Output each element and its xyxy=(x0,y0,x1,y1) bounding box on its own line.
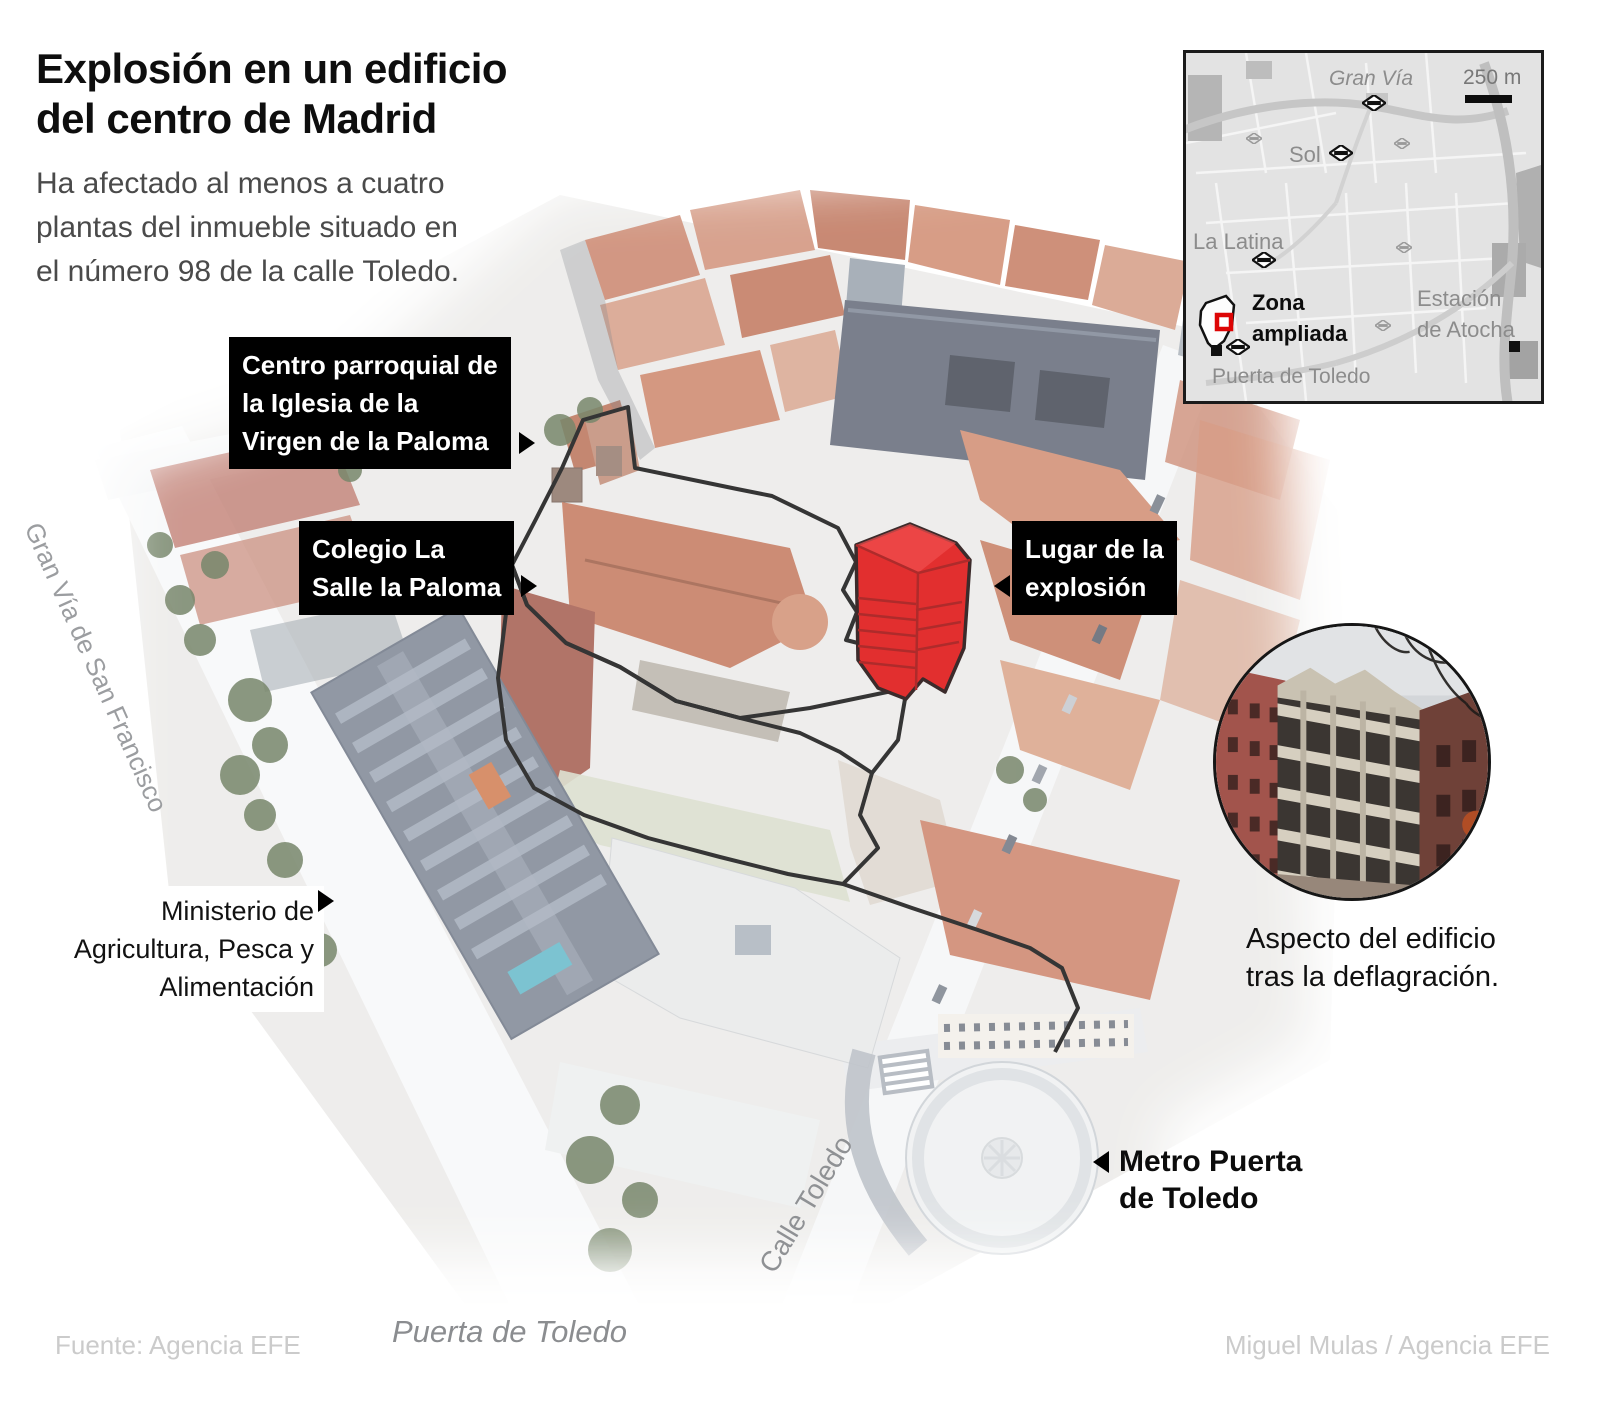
metro-icon xyxy=(1394,138,1410,149)
callout-centro-parroquial-line2: la Iglesia de la xyxy=(242,384,498,422)
street-label-puerta-de-toledo: Puerta de Toledo xyxy=(392,1314,627,1350)
page-title: Explosión en un edificio del centro de M… xyxy=(36,44,507,144)
callout-centro-parroquial: Centro parroquial de la Iglesia de la Vi… xyxy=(229,337,511,469)
metro-icon xyxy=(1396,242,1412,253)
source-credit: Fuente: Agencia EFE xyxy=(55,1330,301,1361)
zona-line1: Zona xyxy=(1252,287,1347,318)
page-title-line1: Explosión en un edificio xyxy=(36,44,507,94)
scale-bar xyxy=(1465,95,1512,103)
metro-icon xyxy=(1226,339,1250,355)
estacion-line1: Estación xyxy=(1417,283,1515,314)
author-credit: Miguel Mulas / Agencia EFE xyxy=(1225,1330,1550,1361)
inset-label-gran-via: Gran Vía xyxy=(1329,67,1413,91)
callout-lugar-explosion-line2: explosión xyxy=(1025,568,1164,606)
callout-colegio: Colegio La Salle la Paloma xyxy=(299,521,514,615)
subtitle-line2: plantas del inmueble situado en xyxy=(36,206,459,250)
damage-photo xyxy=(1213,623,1491,901)
metro-icon xyxy=(1375,320,1391,331)
inset-label-la-latina: La Latina xyxy=(1193,229,1284,255)
pointer-left-icon xyxy=(1093,1151,1109,1173)
callout-ministerio: Ministerio de Agricultura, Pesca y Alime… xyxy=(52,886,324,1012)
zona-line2: ampliada xyxy=(1252,318,1347,349)
callout-colegio-line2: Salle la Paloma xyxy=(312,568,501,606)
damage-photo-graphics xyxy=(1216,626,1488,898)
photo-caption-line2: tras la deflagración. xyxy=(1246,958,1499,996)
landmark-square-icon xyxy=(1211,345,1222,356)
inset-label-sol: Sol xyxy=(1289,142,1321,168)
photo-caption: Aspecto del edificio tras la deflagració… xyxy=(1246,920,1499,996)
zona-red-square-icon xyxy=(1217,315,1231,329)
callout-ministerio-line1: Ministerio de xyxy=(62,892,314,930)
metro-icon xyxy=(1329,145,1353,161)
callout-centro-parroquial-line1: Centro parroquial de xyxy=(242,346,498,384)
page-title-line2: del centro de Madrid xyxy=(36,94,507,144)
callout-ministerio-line3: Alimentación xyxy=(62,968,314,1006)
inset-map: Gran Vía 250 m Sol La Latina Zona amplia… xyxy=(1183,50,1544,404)
inset-label-puerta-de-toledo: Puerta de Toledo xyxy=(1212,365,1370,389)
callout-metro: Metro Puerta de Toledo xyxy=(1093,1143,1302,1217)
inset-label-estacion-atocha: Estación de Atocha xyxy=(1417,283,1515,345)
estacion-line2: de Atocha xyxy=(1417,314,1515,345)
photo-caption-line1: Aspecto del edificio xyxy=(1246,920,1499,958)
inset-scale-label: 250 m xyxy=(1463,66,1521,90)
pointer-right-icon xyxy=(521,575,537,597)
metro-icon xyxy=(1362,95,1386,111)
pointer-right-icon xyxy=(519,432,535,454)
callout-metro-line1: Metro Puerta xyxy=(1119,1143,1302,1180)
page-subtitle: Ha afectado al menos a cuatro plantas de… xyxy=(36,162,459,294)
callout-lugar-explosion-line1: Lugar de la xyxy=(1025,530,1164,568)
subtitle-line1: Ha afectado al menos a cuatro xyxy=(36,162,459,206)
callout-lugar-explosion: Lugar de la explosión xyxy=(1012,521,1177,615)
metro-icon xyxy=(1246,133,1262,144)
callout-centro-parroquial-line3: Virgen de la Paloma xyxy=(242,422,498,460)
callout-ministerio-line2: Agricultura, Pesca y xyxy=(62,930,314,968)
callout-metro-line2: de Toledo xyxy=(1119,1180,1302,1217)
pointer-right-icon xyxy=(318,890,334,912)
inset-label-zona-ampliada: Zona ampliada xyxy=(1252,287,1347,349)
callout-colegio-line1: Colegio La xyxy=(312,530,501,568)
pointer-left-icon xyxy=(994,575,1010,597)
subtitle-line3: el número 98 de la calle Toledo. xyxy=(36,250,459,294)
infographic-canvas: Explosión en un edificio del centro de M… xyxy=(0,0,1600,1412)
